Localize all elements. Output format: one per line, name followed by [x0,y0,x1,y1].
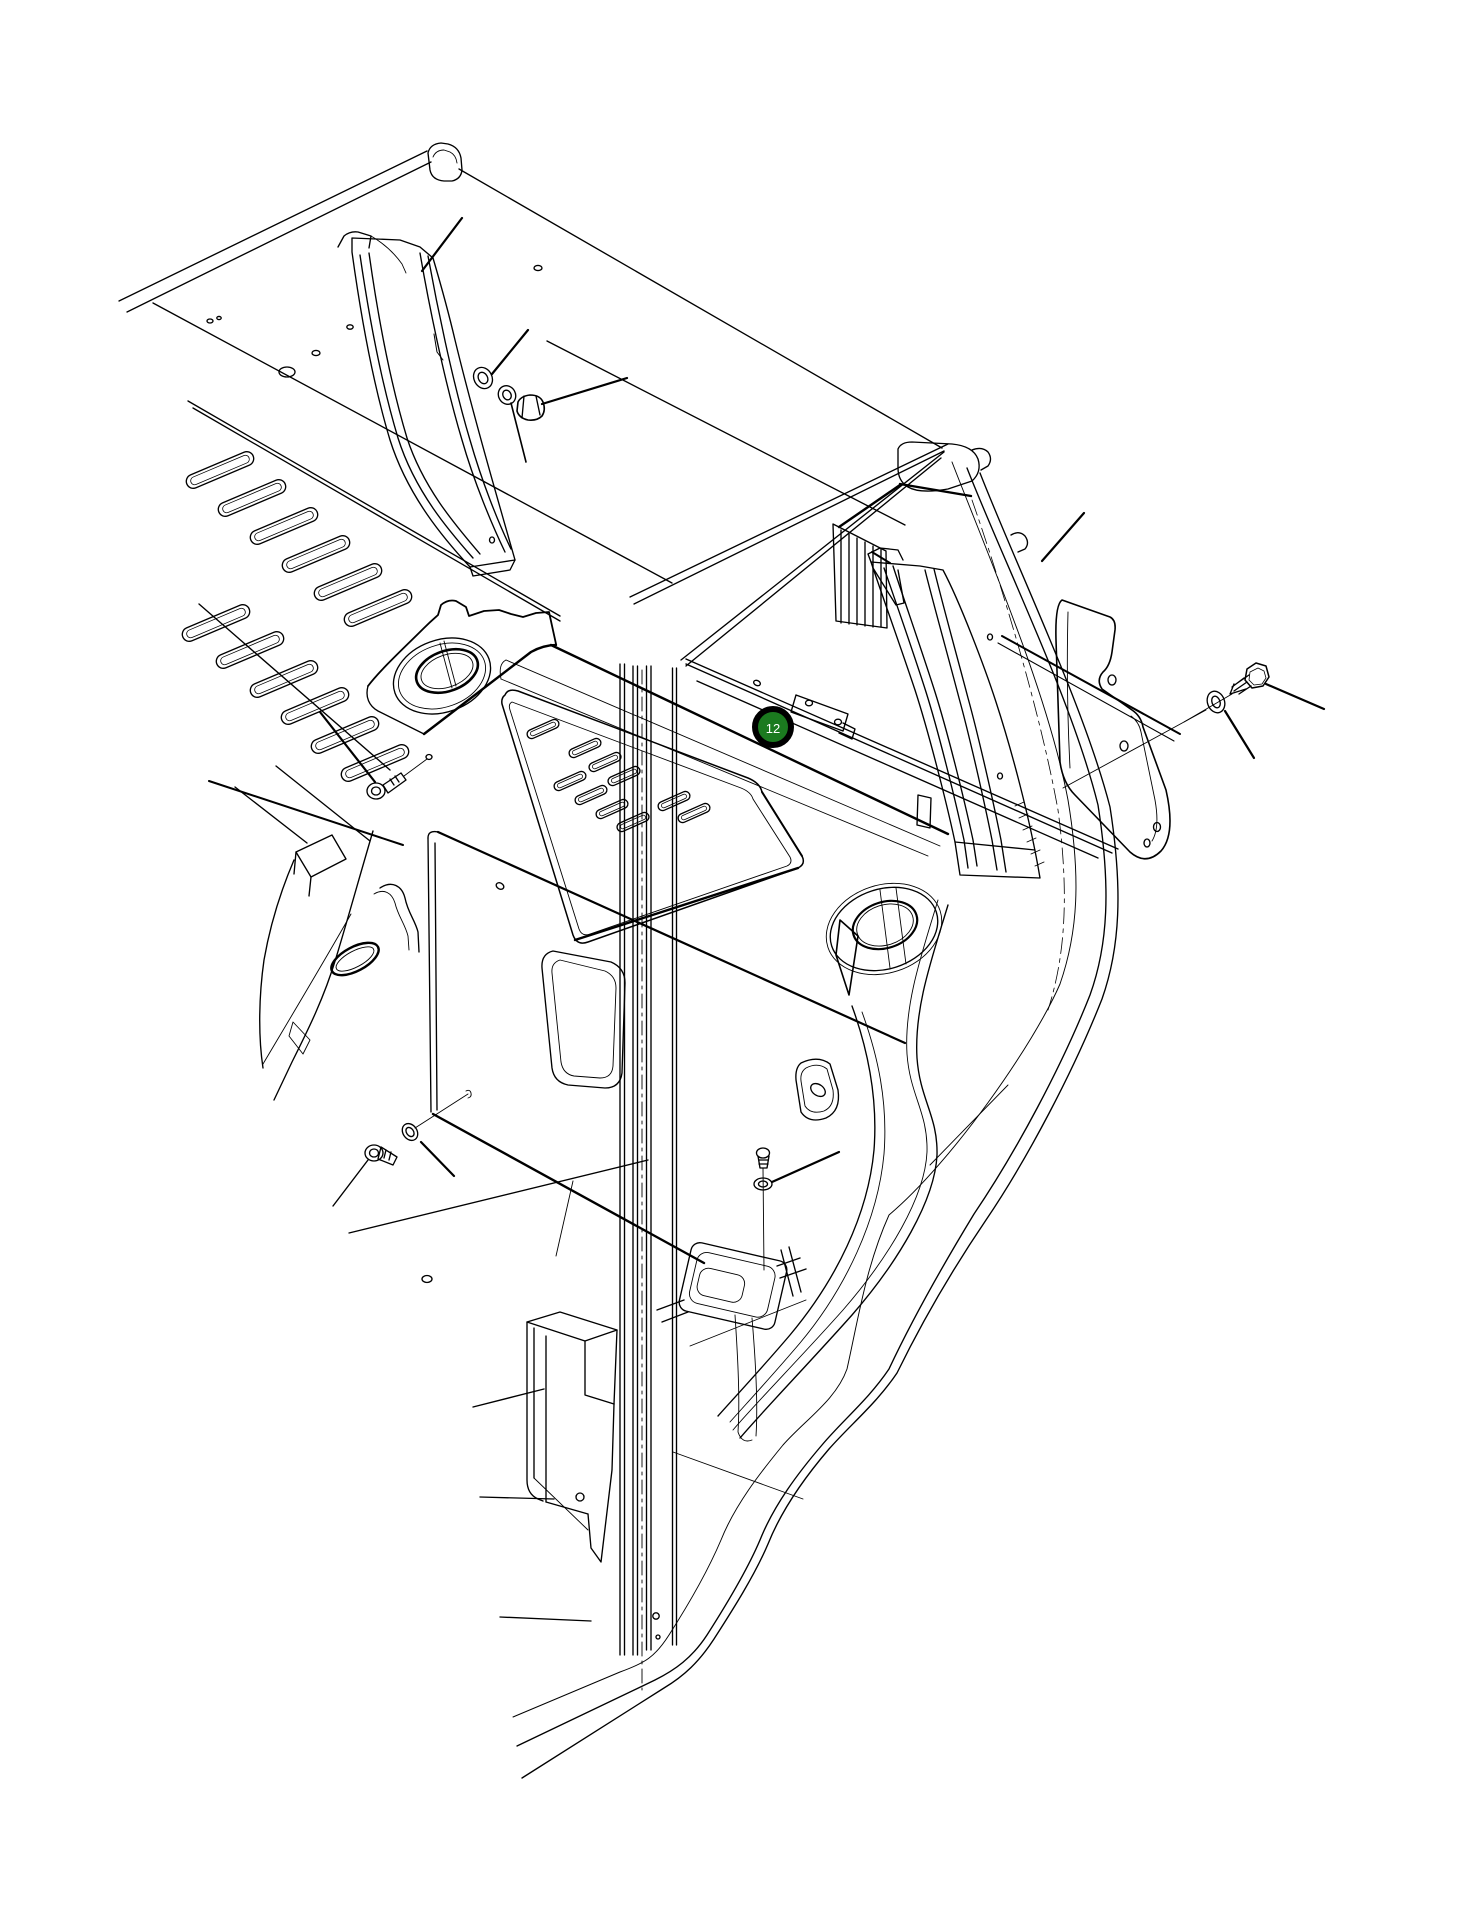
svg-text:12: 12 [766,721,780,736]
